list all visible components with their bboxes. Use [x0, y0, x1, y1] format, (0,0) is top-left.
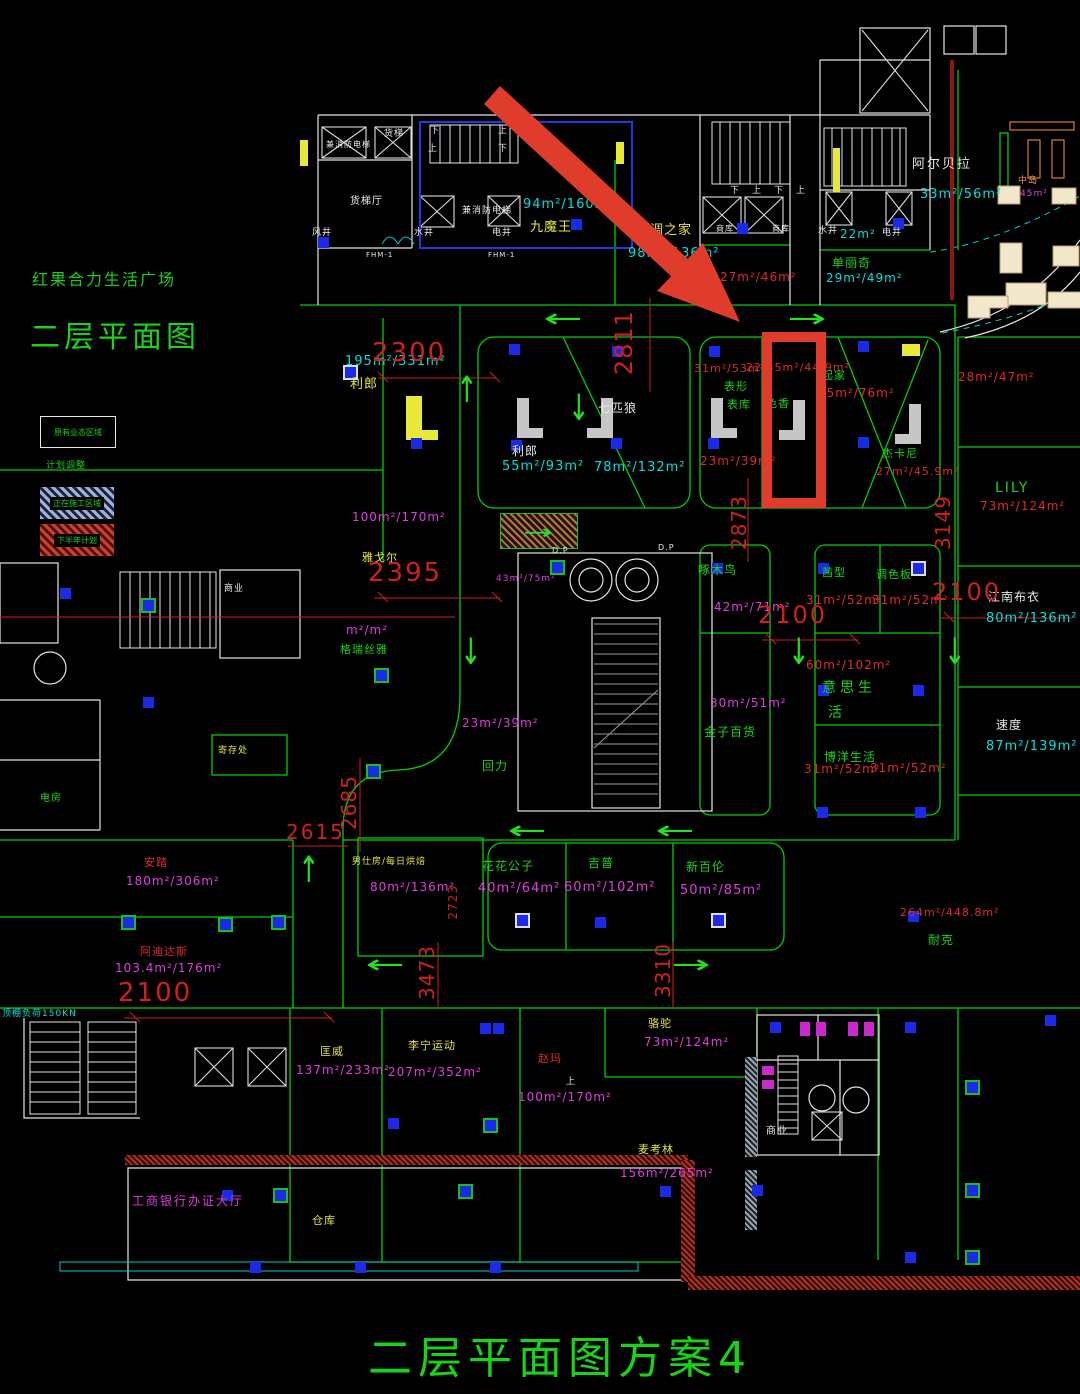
annotation-arrow — [0, 0, 1080, 1394]
floorplan-canvas: ← → ↑ ↓ ↓ ↓ ↓ ↑ ← ← ← → → 红果合力生活广场 二层平面图… — [0, 0, 1080, 1394]
annotation-highlight-box — [762, 332, 826, 508]
